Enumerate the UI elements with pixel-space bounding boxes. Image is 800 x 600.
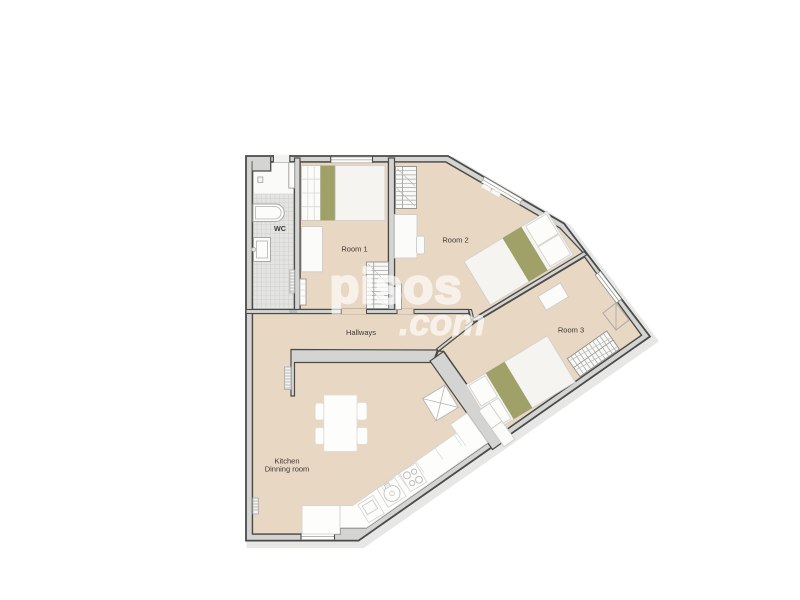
svg-text:WC: WC [274, 224, 286, 233]
svg-text:Dinning room: Dinning room [265, 465, 310, 474]
svg-text:Room 2: Room 2 [442, 235, 468, 244]
svg-text:.com: .com [399, 302, 485, 343]
svg-text:Room 3: Room 3 [558, 326, 584, 335]
svg-text:Hallways: Hallways [346, 328, 376, 337]
svg-text:Room 1: Room 1 [341, 245, 367, 254]
